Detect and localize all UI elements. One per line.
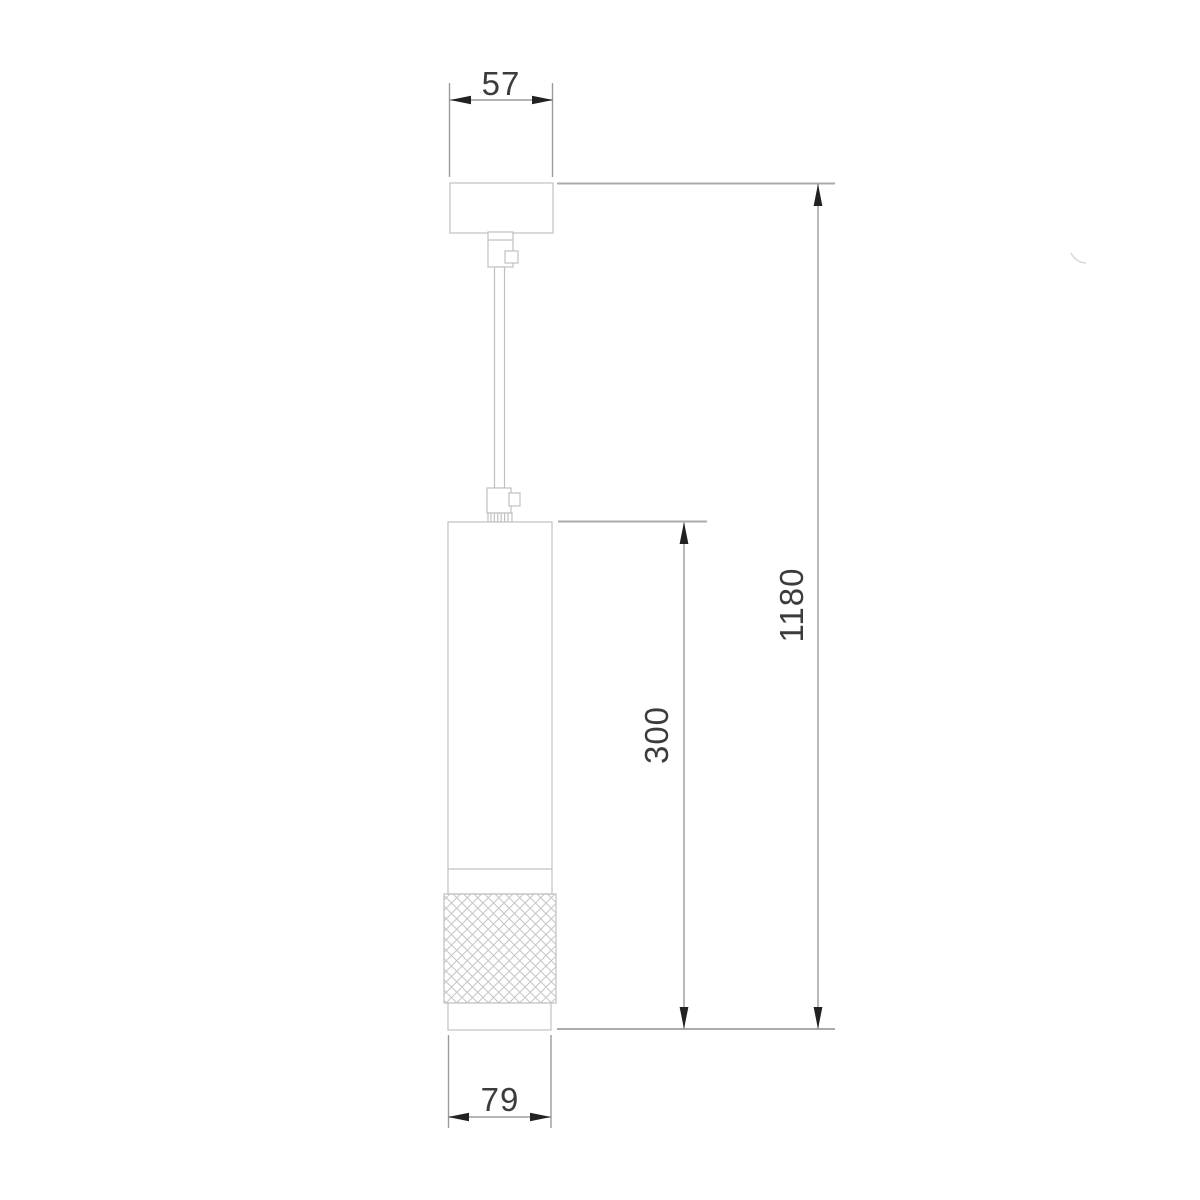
top-cord-grip-screw bbox=[505, 251, 518, 263]
arrow-57-left bbox=[450, 96, 471, 105]
ceiling-canopy bbox=[450, 183, 553, 233]
technical-drawing-page: 57 79 1180 300 bbox=[0, 0, 1200, 1200]
cylindrical-lamp-body bbox=[448, 522, 552, 894]
arrow-79-right bbox=[530, 1113, 551, 1122]
bottom-cord-grip bbox=[487, 488, 511, 513]
dim-label-body-height: 300 bbox=[638, 706, 675, 764]
arrow-300-top bbox=[680, 522, 689, 544]
knurled-grip-ring bbox=[444, 894, 556, 1003]
bottom-trim-ring bbox=[448, 1003, 551, 1030]
dim-label-canopy-width: 57 bbox=[482, 65, 521, 102]
suspension-stem bbox=[495, 267, 505, 488]
fixture-outline-group bbox=[444, 183, 556, 1030]
arrow-300-bottom bbox=[680, 1007, 689, 1029]
dim-label-body-diameter: 79 bbox=[481, 1081, 520, 1118]
arrow-57-right bbox=[532, 96, 553, 105]
scan-artifact-mark bbox=[1071, 253, 1086, 263]
dim-label-overall-drop: 1180 bbox=[773, 568, 810, 643]
arrow-1180-bottom bbox=[814, 1007, 823, 1029]
bottom-cord-grip-screw bbox=[509, 493, 520, 506]
arrow-1180-top bbox=[814, 184, 823, 206]
arrow-79-left bbox=[448, 1113, 469, 1122]
drawing-svg: 57 79 1180 300 bbox=[0, 0, 1200, 1200]
